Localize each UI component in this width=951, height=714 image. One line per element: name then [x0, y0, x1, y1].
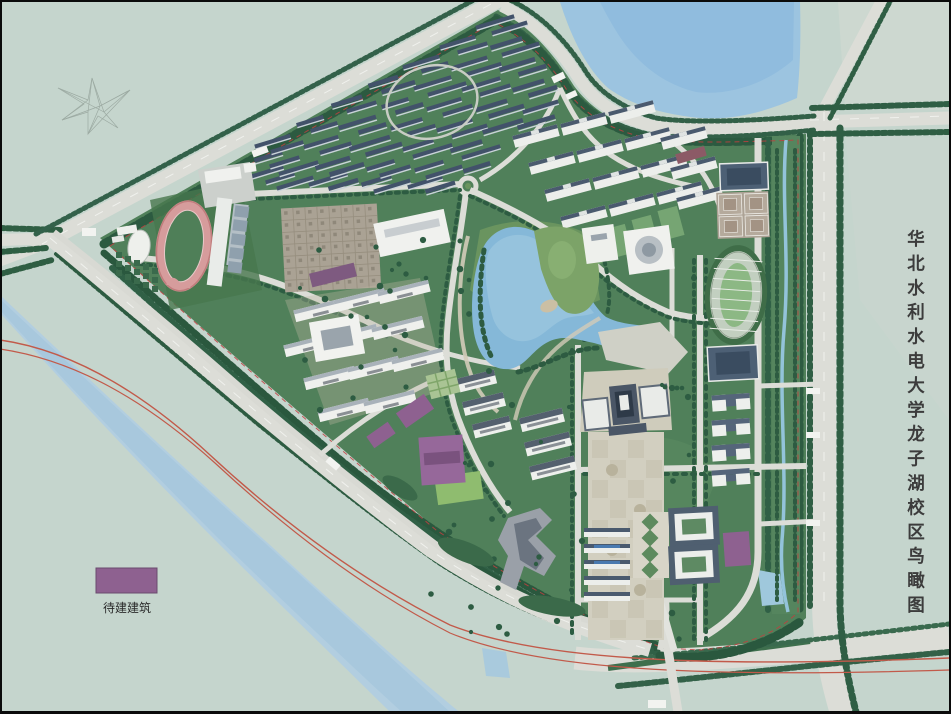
- svg-text:校: 校: [907, 497, 925, 517]
- svg-text:学: 学: [907, 400, 925, 420]
- svg-text:利: 利: [907, 302, 925, 322]
- svg-text:图: 图: [907, 595, 925, 615]
- svg-text:待建建筑: 待建建筑: [103, 600, 151, 615]
- svg-text:大: 大: [907, 375, 925, 395]
- svg-text:龙: 龙: [907, 424, 925, 444]
- svg-text:区: 区: [907, 522, 925, 542]
- svg-text:水: 水: [907, 327, 925, 347]
- svg-text:瞰: 瞰: [907, 571, 925, 591]
- svg-text:子: 子: [907, 449, 925, 469]
- svg-text:湖: 湖: [907, 473, 925, 493]
- svg-text:北: 北: [907, 253, 925, 273]
- svg-text:鸟: 鸟: [907, 546, 925, 566]
- svg-text:电: 电: [907, 351, 925, 371]
- svg-text:水: 水: [907, 278, 925, 298]
- svg-text:华: 华: [907, 229, 925, 249]
